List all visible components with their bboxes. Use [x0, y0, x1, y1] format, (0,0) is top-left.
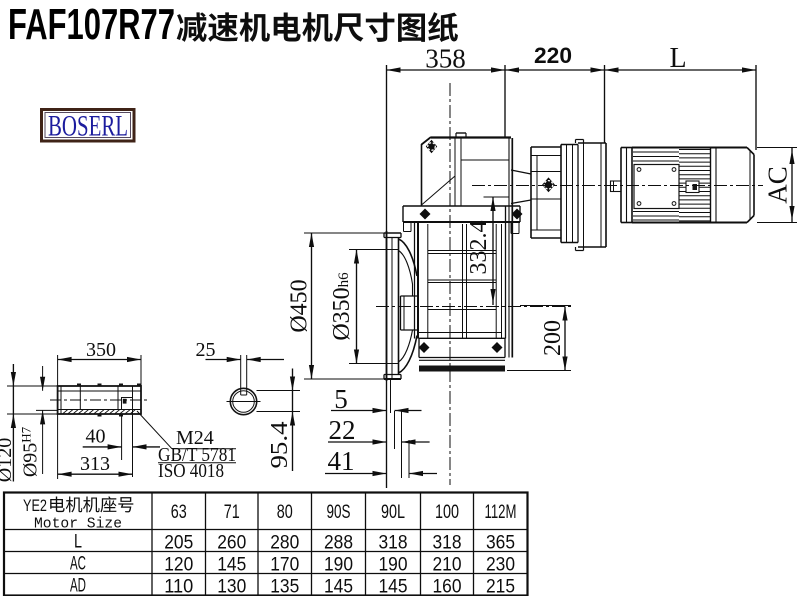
svg-text:205: 205 — [164, 532, 193, 554]
svg-text:100: 100 — [435, 501, 459, 523]
svg-text:170: 170 — [270, 554, 299, 576]
svg-text:313: 313 — [80, 453, 110, 475]
svg-text:90S: 90S — [327, 501, 351, 523]
svg-text:FAF107R77: FAF107R77 — [8, 0, 175, 49]
svg-text:190: 190 — [379, 554, 408, 576]
svg-text:AC: AC — [763, 166, 793, 204]
svg-text:22: 22 — [329, 415, 356, 445]
svg-text:332.4: 332.4 — [466, 221, 492, 275]
svg-text:130: 130 — [217, 576, 246, 596]
svg-text:63: 63 — [171, 501, 187, 523]
svg-text:41: 41 — [328, 446, 355, 476]
svg-text:318: 318 — [433, 532, 462, 554]
svg-text:210: 210 — [433, 554, 462, 576]
svg-text:90L: 90L — [381, 501, 405, 523]
svg-text:ISO 4018: ISO 4018 — [158, 460, 224, 482]
svg-text:Ø450: Ø450 — [287, 279, 313, 332]
svg-text:145: 145 — [379, 576, 408, 596]
svg-text:358: 358 — [425, 44, 466, 74]
svg-text:71: 71 — [224, 501, 240, 523]
svg-text:350: 350 — [86, 339, 116, 361]
svg-text:40: 40 — [86, 426, 106, 448]
svg-text:318: 318 — [379, 532, 408, 554]
svg-text:135: 135 — [270, 576, 299, 596]
svg-text:AD: AD — [70, 575, 86, 596]
svg-text:5: 5 — [334, 384, 348, 414]
svg-text:280: 280 — [270, 532, 299, 554]
svg-text:160: 160 — [433, 576, 462, 596]
svg-text:215: 215 — [486, 576, 515, 596]
svg-text:BOSERL: BOSERL — [48, 110, 128, 143]
svg-text:288: 288 — [324, 532, 353, 554]
svg-text:190: 190 — [324, 554, 353, 576]
svg-text:230: 230 — [486, 554, 515, 576]
svg-text:145: 145 — [217, 554, 246, 576]
svg-text:200: 200 — [540, 320, 566, 356]
svg-text:365: 365 — [486, 532, 515, 554]
svg-text:260: 260 — [217, 532, 246, 554]
svg-text:L: L — [669, 43, 686, 74]
svg-text:220: 220 — [534, 43, 572, 68]
svg-text:112M: 112M — [485, 501, 517, 523]
svg-text:120: 120 — [164, 554, 193, 576]
svg-text:25: 25 — [196, 339, 216, 361]
svg-text:145: 145 — [324, 576, 353, 596]
svg-text:L: L — [74, 531, 82, 553]
svg-text:95.4: 95.4 — [267, 422, 293, 469]
svg-text:Ø120: Ø120 — [0, 438, 16, 482]
svg-text:110: 110 — [164, 576, 193, 596]
svg-text:AC: AC — [70, 553, 86, 575]
svg-text:80: 80 — [277, 501, 293, 523]
svg-text:YE2: YE2 — [23, 496, 47, 515]
